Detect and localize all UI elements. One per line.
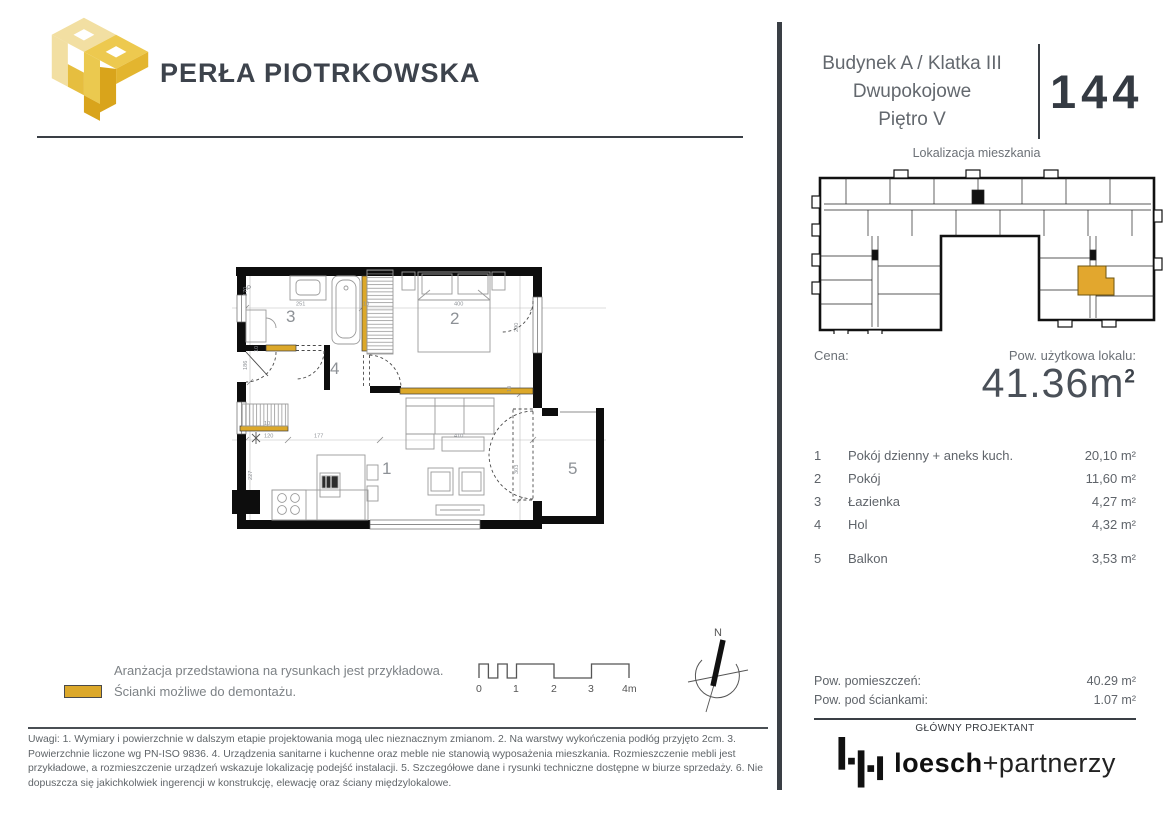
north-compass-icon: N [682,624,754,720]
designer-name-bold: loesch [894,748,983,778]
svg-text:1: 1 [382,459,391,478]
room-name: Pokój dzienny + aneks kuch. [848,448,1085,463]
totals-walls-label: Pow. pod ściankami: [814,693,928,712]
room-name: Balkon [848,551,1092,566]
room-no: 4 [814,517,848,532]
totals-walls-row: Pow. pod ściankami: 1.07 m² [814,693,1136,712]
svg-text:10: 10 [264,421,270,427]
apartment-floorplan: 1 2 3 4 5 P 170 251 10 400 290 186 10 12… [230,258,608,534]
building-locator-plan [806,162,1168,334]
svg-text:3: 3 [588,683,594,695]
demolition-note: Ścianki możliwe do demontażu. [114,684,296,699]
unit-building: Budynek A / Klatka III [790,50,1034,78]
demolition-wall-swatch [64,685,102,698]
svg-text:2: 2 [450,309,459,328]
svg-text:10: 10 [363,302,369,308]
totals-rooms-value: 40.29 m² [1087,674,1136,693]
unit-header-divider [1038,44,1040,139]
asterisk-mark [252,432,260,444]
room-area: 11,60 m² [1086,471,1136,486]
brochure-page: PERŁA PIOTRKOWSKA [0,0,1171,823]
perla-piotrkowska-logo-icon [48,10,152,122]
brand-divider-line [37,136,743,138]
area-number: 41.36m [982,360,1125,406]
room-no: 5 [814,551,848,566]
svg-text:303: 303 [514,465,520,474]
unit-meta: Budynek A / Klatka III Dwupokojowe Piętr… [790,50,1034,134]
designer-logo: loesch+partnerzy [814,737,1136,789]
svg-text:177: 177 [314,434,323,440]
rooms-table: 1 Pokój dzienny + aneks kuch. 20,10 m² 2… [814,444,1136,570]
room-area: 4,27 m² [1092,494,1136,509]
designer-name-light: +partnerzy [983,748,1116,778]
table-row: 1 Pokój dzienny + aneks kuch. 20,10 m² [814,444,1136,467]
loesch-logo-icon [834,737,886,789]
totals-rooms-row: Pow. pomieszczeń: 40.29 m² [814,674,1136,693]
svg-text:5: 5 [568,459,577,478]
demolition-legend: Ścianki możliwe do demontażu. [64,684,296,699]
svg-text:10: 10 [254,346,260,352]
table-row: 4 Hol 4,32 m² [814,513,1136,536]
designer-name: loesch+partnerzy [894,748,1116,779]
locator-title: Lokalizacja mieszkania [782,146,1171,160]
totals-block: Pow. pomieszczeń: 40.29 m² Pow. pod ścia… [814,674,1136,712]
svg-text:4: 4 [330,359,339,378]
panel-divider [777,22,782,790]
svg-text:3: 3 [286,307,295,326]
footnote-text: Uwagi: 1. Wymiary i powierzchnie w dalsz… [28,733,767,791]
arrangement-note: Aranżacja przedstawiona na rysunkach jes… [114,663,444,678]
svg-text:1: 1 [513,683,519,695]
totals-walls-value: 1.07 m² [1094,693,1136,712]
unit-floor: Piętro V [790,106,1034,134]
scale-bar-labels: 0 1 2 3 4m [476,683,637,695]
room-no: 3 [814,494,848,509]
room-name: Łazienka [848,494,1092,509]
room-area: 20,10 m² [1085,448,1136,463]
room-no: 2 [814,471,848,486]
room-area: 3,53 m² [1092,551,1136,566]
svg-text:400: 400 [454,302,463,308]
room-name: Hol [848,517,1092,532]
svg-text:0: 0 [476,683,482,695]
north-label: N [714,627,722,639]
svg-text:290: 290 [514,323,520,332]
entrance-door-leaf [246,352,268,376]
designer-heading: GŁÓWNY PROJEKTANT [814,723,1136,734]
room-name: Pokój [848,471,1086,486]
footnote-divider-line [28,727,768,729]
svg-text:410: 410 [454,434,463,440]
svg-text:251: 251 [296,302,305,308]
usable-area-value: 41.36m2 [814,360,1136,407]
table-row: 5 Balkon 3,53 m² [814,547,1136,570]
furniture [242,270,505,520]
scale-bar: 0 1 2 3 4m [474,648,659,696]
unit-type: Dwupokojowe [790,78,1034,106]
svg-text:2: 2 [551,683,557,695]
room-no: 1 [814,448,848,463]
designer-divider-line [814,718,1136,720]
svg-text:120: 120 [264,434,273,440]
svg-text:170: 170 [243,287,249,296]
svg-text:186: 186 [243,361,249,370]
table-row: 2 Pokój 11,60 m² [814,467,1136,490]
room-area: 4,32 m² [1092,517,1136,532]
brand-title: PERŁA PIOTRKOWSKA [160,58,481,89]
unit-header: Budynek A / Klatka III Dwupokojowe Piętr… [790,44,1143,139]
unit-number: 144 [1050,64,1143,119]
area-superscript: 2 [1124,366,1136,387]
totals-rooms-label: Pow. pomieszczeń: [814,674,921,693]
svg-text:227: 227 [248,471,254,480]
svg-text:4m: 4m [622,683,637,695]
svg-text:10: 10 [507,386,513,392]
table-row: 3 Łazienka 4,27 m² [814,490,1136,513]
